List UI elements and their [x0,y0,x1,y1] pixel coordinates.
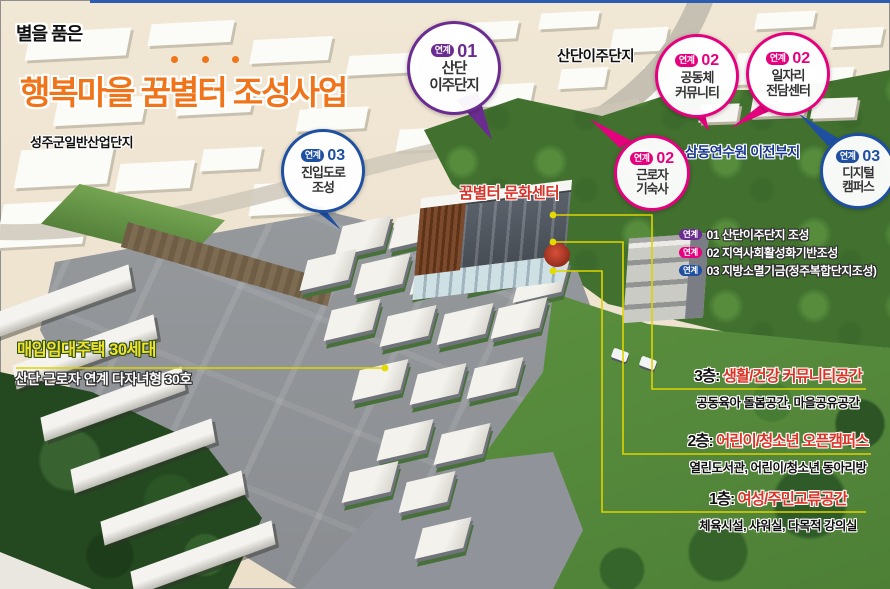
callout-line: 산단 [442,61,467,78]
title-emphasis-dot [202,56,209,63]
floor-level: 2층: [688,433,713,450]
floor-description: 공동육아 돌봄공간, 마을공유공간 [658,392,890,411]
label-industrial-complex: 성주군일반산업단지 [30,132,133,151]
callout-badge-row: 연계 03 [836,149,880,165]
link-number: 02 [792,51,810,67]
project-poster: 별을 품은 행복마을 꿈별터 조성사업 성주군일반산업단지 산단이주단지 삼동연… [0,0,890,589]
legend-item: 연계 03 지방소멸기금(정주복합단지조성) [679,263,876,278]
legend-text: 01 산단이주단지 조성 [707,226,809,243]
label-training-center-site: 삼동연수원 이전부지 [685,142,800,162]
callout-line: 근로자 [636,168,668,182]
callout-badge-row: 연계 02 [630,151,674,167]
floor-1-section: 1층: 여성/주민교류공간 체육시설, 샤워실, 다목적 강의실 [658,491,890,534]
floor-level: 3층: [694,368,719,385]
housing-label-title: 매입임대주택 30세대 [17,336,156,360]
floor-heading: 2층: 어린이/청소년 오픈캠퍼스 [658,433,890,450]
link-number: 03 [327,148,345,164]
connector-dots [382,212,557,372]
callout-badge-row: 연계 02 [766,51,810,67]
floor-name: 어린이/청소년 오픈캠퍼스 [716,433,868,450]
callout-line: 이주단지 [429,78,478,95]
callout-jobs-center: 연계 02 일자리 전담센터 [746,32,830,116]
floor-2-section: 2층: 어린이/청소년 오픈캠퍼스 열린도서관, 어린이/청소년 동아리방 [658,433,890,476]
callout-line: 조성 [312,180,334,195]
callout-access-road: 연계 03 진입도로 조성 [281,129,365,213]
link-badge: 연계 [630,152,654,164]
callout-line: 커뮤니티 [675,85,719,100]
callout-line: 디지털 [842,166,874,180]
link-badge: 연계 [679,247,702,259]
housing-label-subtitle: 산단 근로자 연계 다자녀형 30호 [15,369,192,389]
floor-name: 여성/주민교류공간 [737,491,846,508]
link-legend: 연계 01 산단이주단지 조성 연계 02 지역사회활성화기반조성 연계 03 … [679,227,876,281]
floor-level: 1층: [709,491,734,508]
callout-digital-campus: 연계 03 디지털 캠퍼스 [820,133,890,209]
link-number: 03 [862,149,880,165]
callout-badge-row: 연계 01 [431,42,478,60]
callout-badge-row: 연계 03 [301,148,345,164]
legend-item: 연계 01 산단이주단지 조성 [679,227,876,242]
callout-line: 기숙사 [636,182,668,196]
link-badge: 연계 [675,54,699,66]
legend-text: 02 지역사회활성화기반조성 [707,244,838,261]
link-badge: 연계 [836,150,860,162]
link-badge: 연계 [679,229,702,241]
callout-community: 연계 02 공동체 커뮤니티 [655,34,739,118]
callout-sandan-relocation: 연계 01 산단 이주단지 [407,21,501,115]
link-badge: 연계 [431,44,455,56]
link-badge: 연계 [679,265,702,277]
floor-name: 생활/건강 커뮤니티공간 [723,368,862,385]
link-badge: 연계 [766,52,790,64]
legend-item: 연계 02 지역사회활성화기반조성 [679,245,876,260]
title-emphasis-dot [171,56,178,63]
callout-worker-dormitory: 연계 02 근로자 기숙사 [614,135,690,211]
callout-line: 전담센터 [766,83,810,98]
callout-badge-row: 연계 02 [675,53,719,69]
link-number: 01 [457,42,477,60]
link-badge: 연계 [301,149,325,161]
legend-text: 03 지방소멸기금(정주복합단지조성) [707,262,877,279]
floor-description: 열린도서관, 어린이/청소년 동아리방 [658,457,890,476]
link-number: 02 [701,53,719,69]
callout-line: 공동체 [681,70,714,85]
floor-3-section: 3층: 생활/건강 커뮤니티공간 공동육아 돌봄공간, 마을공유공간 [658,368,890,411]
floor-description: 체육시설, 샤워실, 다목적 강의실 [658,515,890,534]
label-relocation-complex: 산단이주단지 [557,45,634,66]
link-number: 02 [656,151,674,167]
floor-heading: 3층: 생활/건강 커뮤니티공간 [658,368,890,385]
callout-line: 일자리 [772,68,805,83]
title-emphasis-dot [232,56,239,63]
label-culture-center: 꿈별터 문화센터 [459,181,559,203]
floor-heading: 1층: 여성/주민교류공간 [658,491,890,508]
title-tagline: 별을 품은 [16,20,82,46]
page-title: 행복마을 꿈별터 조성사업 [20,66,346,114]
callout-line: 진입도로 [301,165,345,180]
callout-line: 캠퍼스 [842,180,874,194]
